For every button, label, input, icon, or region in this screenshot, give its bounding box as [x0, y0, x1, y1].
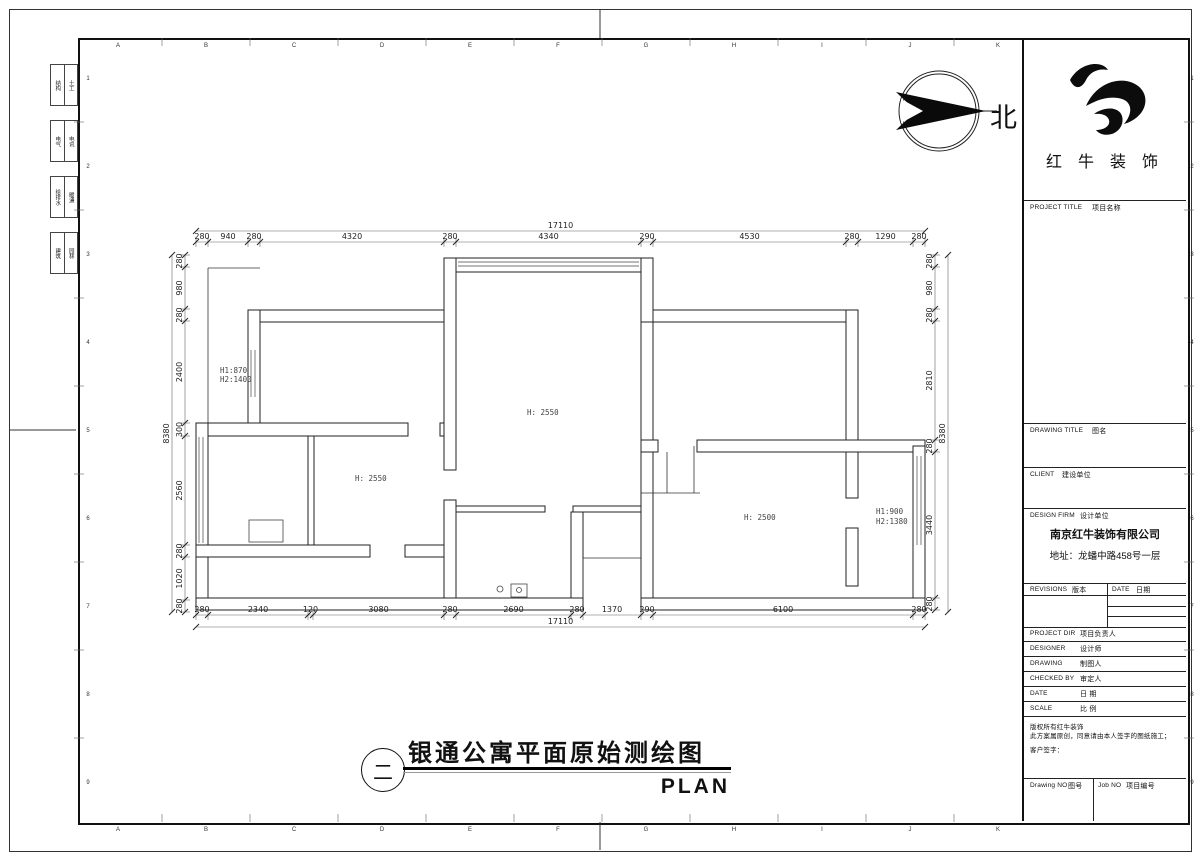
dim-value: 940: [220, 232, 235, 241]
drawing-title-text: 银通公寓平面原始测绘图: [408, 733, 705, 768]
job-no-zh: 项目编号: [1126, 781, 1155, 791]
row-drawing-zh: 制图人: [1080, 659, 1102, 669]
company-name: 南京红牛装饰有限公司: [1022, 526, 1188, 542]
wall: [248, 310, 260, 436]
grid-number: 5: [86, 428, 90, 434]
dim-value: 280: [175, 543, 184, 558]
grid-letter: F: [556, 43, 560, 49]
grid-letter: J: [909, 827, 912, 833]
dim-value: 4530: [739, 232, 759, 241]
wall: [641, 452, 653, 598]
wall: [846, 452, 858, 498]
row-date-zh: 日 期: [1080, 689, 1097, 699]
dim-value: 280: [194, 232, 209, 241]
drawing-index: 二: [373, 756, 393, 785]
grid-letter: A: [116, 827, 120, 833]
grid-number: 8: [1190, 692, 1194, 698]
wall: [456, 506, 545, 512]
dim-value: 280: [175, 307, 184, 322]
dim-value: 290: [639, 605, 654, 614]
wall: [308, 436, 314, 545]
dim-value: 280: [194, 605, 209, 614]
project-title-zh: 项目名称: [1092, 203, 1121, 213]
height-label: H: 2550: [355, 474, 387, 483]
wall: [444, 258, 653, 272]
signoff-discipline: 土工: [65, 65, 78, 105]
dim-value: 3440: [925, 515, 934, 535]
dim-value: 1020: [175, 568, 184, 588]
client-zh: 建设单位: [1062, 470, 1091, 480]
dim-overall: 8380: [162, 423, 171, 443]
drawing-no-zh: 图号: [1068, 781, 1082, 791]
date-col-en: DATE: [1112, 586, 1130, 593]
drawing-index-circle: 二: [361, 748, 405, 792]
dim-value: 2810: [925, 370, 934, 390]
dim-value: 120: [303, 605, 318, 614]
grid-letter: E: [468, 827, 472, 833]
fixture: [511, 584, 527, 597]
dim-value: 280: [925, 253, 934, 268]
signoff-discipline: 暖通: [65, 177, 78, 217]
grid-number: 7: [86, 604, 90, 610]
grid-number: 1: [86, 76, 90, 82]
dim-value: 280: [844, 232, 859, 241]
row-designer-zh: 设计师: [1080, 644, 1102, 654]
grid-number: 4: [1190, 340, 1194, 346]
plan-label: PLAN: [560, 775, 730, 799]
wall: [641, 310, 858, 322]
row-checked-by-zh: 审定人: [1080, 674, 1102, 684]
job-no-en: Job NO: [1098, 782, 1121, 789]
grid-letter: D: [380, 827, 385, 833]
grid-number: 8: [86, 692, 90, 698]
drawing-sheet: { "sheet": { "grid_letters": ["A","B","C…: [0, 0, 1200, 860]
dim-overall: 8380: [938, 423, 947, 443]
signoff-box: 电气 电讯: [50, 120, 78, 162]
grid-letter: G: [644, 43, 649, 49]
dim-value: 280: [911, 232, 926, 241]
signoff-box: 建筑 园林: [50, 232, 78, 274]
grid-letter: I: [821, 827, 823, 833]
height-label: H1:870: [220, 366, 248, 375]
wall: [697, 440, 925, 452]
dim-value: 280: [442, 232, 457, 241]
north-arrow-icon: [893, 66, 1005, 158]
row-scale-en: SCALE: [1030, 705, 1052, 712]
row-date-en: DATE: [1030, 690, 1048, 697]
height-label: H: 2500: [744, 513, 776, 522]
grid-letter: F: [556, 827, 560, 833]
dim-value: 280: [175, 598, 184, 613]
grid-number: 3: [1190, 252, 1194, 258]
grid-letter: K: [996, 827, 1000, 833]
dim-value: 4340: [538, 232, 558, 241]
grid-letter: B: [204, 43, 208, 49]
wall: [641, 258, 653, 322]
logo-bull-icon: [1064, 60, 1148, 142]
signoff-discipline: 电讯: [65, 121, 78, 161]
grid-number: 9: [86, 780, 90, 786]
dim-value: 280: [569, 605, 584, 614]
signoff-discipline: 结构: [51, 65, 65, 105]
signoff-discipline: 园林: [65, 233, 78, 273]
dim-value: 290: [639, 232, 654, 241]
row-project-dir-en: PROJECT DIR: [1030, 630, 1075, 637]
signoff-discipline: 电气: [51, 121, 65, 161]
design-firm-zh: 设计单位: [1080, 511, 1109, 521]
wall: [196, 545, 370, 557]
wall: [571, 512, 583, 598]
customer-signature-label: 客户签字：: [1030, 744, 1064, 754]
grid-letter: H: [732, 827, 736, 833]
grid-number: 7: [1190, 604, 1194, 610]
signoff-box: 结构 土工: [50, 64, 78, 106]
grid-letter: C: [292, 43, 297, 49]
drawing-title-zh: 图名: [1092, 426, 1106, 436]
wall: [248, 310, 456, 322]
dim-value: 3080: [368, 605, 388, 614]
grid-letter: H: [732, 43, 736, 49]
grid-number: 2: [1190, 164, 1194, 170]
wall: [846, 310, 858, 440]
north-label: 北: [990, 96, 1017, 135]
revisions-en: REVISIONS: [1030, 586, 1067, 593]
wall: [444, 500, 456, 598]
signoff-discipline: 给排水: [51, 177, 65, 217]
grid-letter: A: [116, 43, 120, 49]
date-col-zh: 日期: [1136, 585, 1150, 595]
logo-text: 红 牛 装 饰: [1022, 148, 1188, 172]
grid-number: 6: [86, 516, 90, 522]
dim-value: 6100: [773, 605, 793, 614]
grid-number: 2: [86, 164, 90, 170]
title-underline-thick: [403, 767, 731, 770]
row-project-dir-zh: 项目负责人: [1080, 629, 1116, 639]
height-label: H2:1380: [876, 517, 908, 526]
grid-number: 4: [86, 340, 90, 346]
dim-value: 1370: [602, 605, 622, 614]
grid-letter: G: [644, 827, 649, 833]
company-address: 地址：龙蟠中路458号一层: [1022, 548, 1188, 562]
dim-value: 280: [925, 438, 934, 453]
project-title-en: PROJECT TITLE: [1030, 204, 1082, 211]
grid-number: 1: [1190, 76, 1194, 82]
signoff-discipline: 建筑: [51, 233, 65, 273]
client-en: CLIENT: [1030, 471, 1054, 478]
dim-value: 2560: [175, 480, 184, 500]
drawing-no-en: Drawing NO: [1030, 782, 1067, 789]
dim-value: 280: [175, 253, 184, 268]
wall: [196, 423, 208, 610]
dim-value: 300: [175, 422, 184, 437]
title-underline-thin: [403, 772, 731, 773]
height-label: H2:1400: [220, 375, 252, 384]
dim-value: 280: [925, 307, 934, 322]
grid-number: 6: [1190, 516, 1194, 522]
design-firm-en: DESIGN FIRM: [1030, 512, 1075, 519]
wall: [196, 423, 408, 436]
row-scale-zh: 比 例: [1080, 704, 1097, 714]
grid-number: 3: [86, 252, 90, 258]
wall: [573, 506, 641, 512]
dim-value: 2400: [175, 362, 184, 382]
grid-letter: J: [909, 43, 912, 49]
height-label: H1:900: [876, 507, 904, 516]
dim-value: 2340: [248, 605, 268, 614]
dim-value: 280: [925, 596, 934, 611]
fixture: [249, 520, 283, 542]
dim-value: 280: [246, 232, 261, 241]
revisions-zh: 版本: [1072, 585, 1086, 595]
grid-number: 9: [1190, 780, 1194, 786]
dim-value: 280: [442, 605, 457, 614]
fixture: [497, 586, 503, 592]
fixture: [517, 588, 522, 593]
wall: [913, 446, 925, 610]
dim-value: 1290: [875, 232, 895, 241]
wall: [641, 322, 653, 440]
grid-letter: B: [204, 827, 208, 833]
dim-value: 980: [925, 280, 934, 295]
signoff-box: 给排水 暖通: [50, 176, 78, 218]
wall: [641, 440, 658, 452]
dim-value: 4320: [342, 232, 362, 241]
dim-overall: 17110: [548, 221, 573, 230]
dim-overall: 17110: [548, 617, 573, 626]
row-checked-by-en: CHECKED BY: [1030, 675, 1074, 682]
row-designer-en: DESIGNER: [1030, 645, 1066, 652]
drawing-title-en: DRAWING TITLE: [1030, 427, 1083, 434]
dim-value: 2690: [503, 605, 523, 614]
height-label: H: 2550: [527, 408, 559, 417]
grid-letter: I: [821, 43, 823, 49]
wall: [846, 528, 858, 586]
dim-value: 980: [175, 280, 184, 295]
grid-letter: E: [468, 43, 472, 49]
grid-letter: K: [996, 43, 1000, 49]
wall: [444, 258, 456, 470]
row-drawing-en: DRAWING: [1030, 660, 1063, 667]
grid-letter: D: [380, 43, 385, 49]
disclaimer-line2: 此方案属原创，同意请由本人签字的图纸施工；: [1030, 730, 1171, 740]
floor-plan: H1:870H2:1400H: 2550H: 2550H: 2500H1:900…: [0, 0, 1200, 860]
grid-number: 5: [1190, 428, 1194, 434]
grid-letter: C: [292, 827, 297, 833]
